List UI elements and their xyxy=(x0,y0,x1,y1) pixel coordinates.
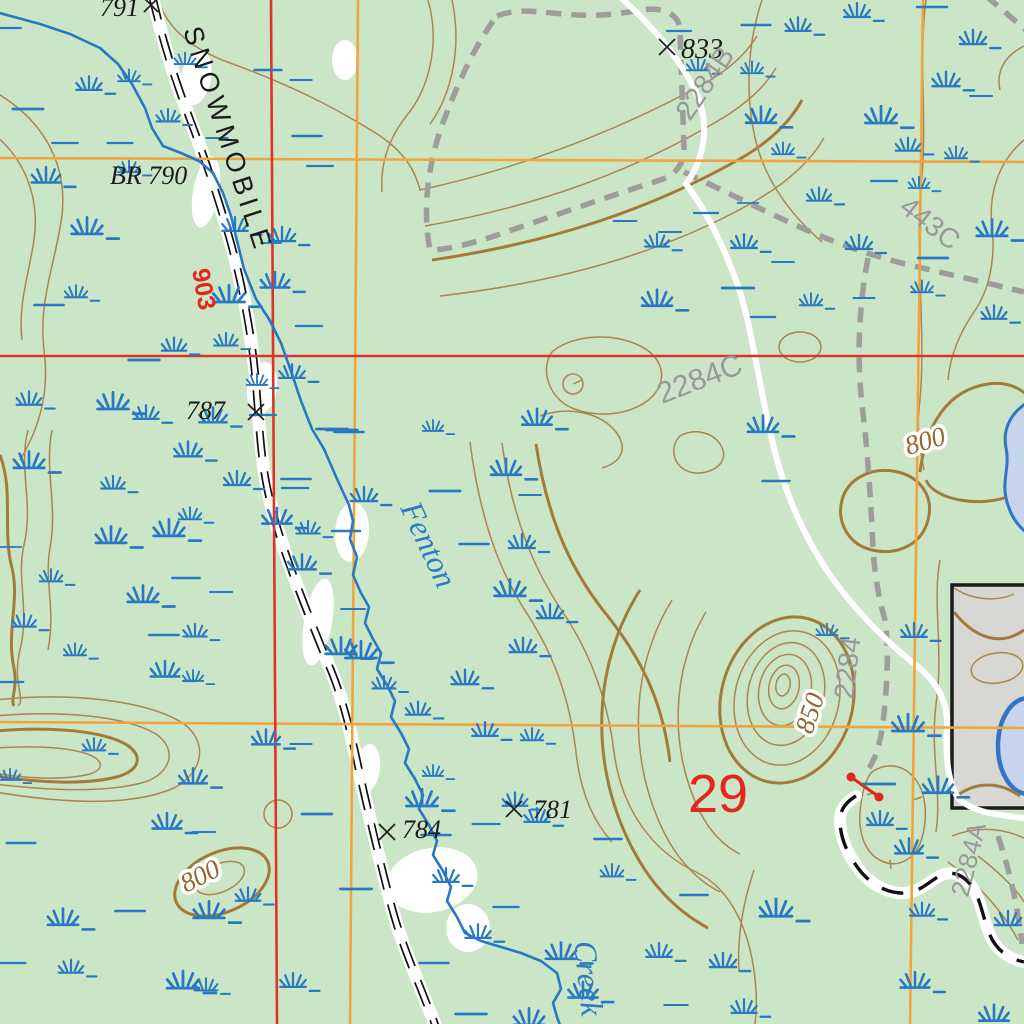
marsh-tuft-icon xyxy=(741,61,775,76)
marsh-tuft-icon xyxy=(406,702,444,719)
marsh-tuft-icon xyxy=(932,72,974,91)
marsh-tuft-icon xyxy=(945,146,979,161)
trail-2284A-label: 2284A xyxy=(945,819,992,900)
marsh-tuft-icon xyxy=(179,507,213,522)
marsh-tuft-icon xyxy=(844,3,884,21)
marsh-tuft-icon xyxy=(261,272,305,292)
marsh-tuft-icon xyxy=(12,614,48,630)
marsh-tuft-icon xyxy=(867,811,907,829)
marsh-tuft-icon xyxy=(960,30,1000,48)
section-number-29: 29 xyxy=(688,764,748,824)
marsh-tuft-icon xyxy=(731,999,770,1016)
marsh-tuft-icon xyxy=(510,638,551,656)
marsh-tuft-icon xyxy=(807,188,844,205)
grid-line-orange-v2 xyxy=(910,0,923,1024)
marsh-tuft-icon xyxy=(118,70,151,85)
marsh-tuft-icon xyxy=(17,391,55,408)
trail-443C-label: 443C xyxy=(894,190,966,256)
pit-inset-box xyxy=(952,585,1024,808)
marsh-tuft-icon xyxy=(72,217,119,238)
benchmark-label: BR 790 xyxy=(110,161,187,190)
marsh-tuft-icon xyxy=(153,813,197,833)
marsh-tuft-icon xyxy=(423,765,455,779)
marsh-tuft-icon xyxy=(982,305,1020,322)
marsh-tuft-icon xyxy=(895,838,938,857)
marsh-tuft-icon xyxy=(64,643,98,658)
marsh-tuft-icon xyxy=(537,604,577,622)
marsh-tuft-icon xyxy=(162,338,200,355)
marsh-tuft-icon xyxy=(65,285,99,300)
marsh-tuft-icon xyxy=(910,903,947,920)
marsh-tuft-icon xyxy=(174,441,216,460)
marsh-tuft-icon xyxy=(98,392,146,413)
route-903-label: 903 xyxy=(186,266,221,312)
map-canvas: 791 SNOWMOBILE BR 790 903 787 833 2284B … xyxy=(0,0,1024,1024)
marsh-tuft-icon xyxy=(495,579,542,600)
marsh-tuft-icon xyxy=(731,234,771,252)
marsh-tuft-icon xyxy=(760,899,809,921)
marsh-tuft-icon xyxy=(279,364,318,382)
marsh-tuft-icon xyxy=(406,789,454,811)
marsh-tuft-icon xyxy=(892,714,940,736)
marsh-tuft-icon xyxy=(645,234,682,251)
spot-label-781: 781 xyxy=(533,795,572,824)
marsh-tuft-icon xyxy=(601,864,636,880)
marsh-tuft-icon xyxy=(785,17,824,34)
contour-label-800-east: 800 xyxy=(901,421,949,461)
marsh-tuft-icon xyxy=(101,476,137,492)
marsh-tuft-icon xyxy=(451,670,493,689)
marsh-tuft-icon xyxy=(491,459,537,480)
marsh-tuft-icon xyxy=(772,142,806,157)
contour-label-800-southwest: 800 xyxy=(175,853,225,898)
clearing-patches xyxy=(176,40,490,952)
spot-label-787: 787 xyxy=(186,396,226,425)
marsh-tuft-icon xyxy=(96,526,143,547)
marsh-tuft-icon xyxy=(151,661,195,681)
marsh-tuft-icon xyxy=(911,280,945,295)
marsh-tuft-icon xyxy=(514,1008,561,1024)
marsh-tuft-icon xyxy=(179,768,222,787)
marsh-tuft-icon xyxy=(83,738,118,754)
marsh-tuft-icon xyxy=(646,943,685,961)
marsh-tuft-icon xyxy=(800,293,834,308)
marsh-tuft-icon xyxy=(32,167,76,187)
marsh-tuft-icon xyxy=(351,487,391,505)
marsh-tuft-icon xyxy=(183,624,219,640)
marsh-tuft-icon xyxy=(194,901,241,922)
marsh-tuft-icon xyxy=(521,728,555,743)
marsh-tuft-icon xyxy=(76,76,115,93)
marsh-tuft-icon xyxy=(977,219,1024,240)
marsh-tuft-icon xyxy=(979,1005,1024,1024)
topo-map-viewport[interactable]: 791 SNOWMOBILE BR 790 903 787 833 2284B … xyxy=(0,0,1024,1024)
marsh-tuft-icon xyxy=(280,973,319,991)
marsh-tuft-icon xyxy=(128,585,175,606)
marsh-tuft-icon xyxy=(710,953,750,971)
marsh-tuft-icon xyxy=(896,138,934,155)
spot-label-784: 784 xyxy=(402,815,441,844)
marsh-tuft-icon xyxy=(865,106,913,128)
grid-line-orange-h2 xyxy=(0,722,1024,728)
marsh-tuft-icon xyxy=(909,177,941,191)
marsh-tuft-icon xyxy=(14,451,61,472)
four-wheel-drive-road xyxy=(840,796,1024,962)
marsh-tuft-icon xyxy=(252,729,295,748)
marsh-tuft-icon xyxy=(154,519,201,540)
marsh-tuft-icon xyxy=(48,909,94,930)
creek-name-creek: Creek xyxy=(567,939,611,1018)
marsh-tuft-icon xyxy=(40,569,75,585)
spot-label-791: 791 xyxy=(100,0,139,22)
marsh-tuft-icon xyxy=(642,290,688,311)
marsh-tuft-icon xyxy=(195,978,230,994)
marsh-tuft-icon xyxy=(901,972,945,992)
creek-name-fenton: Fenton xyxy=(393,495,464,593)
marsh-tuft-icon xyxy=(423,420,455,434)
marsh-tuft-icon xyxy=(59,960,97,977)
marsh-tuft-icon xyxy=(901,623,940,641)
trail-2284-label: 2284 xyxy=(828,635,866,701)
trail-2284C-label: 2284C xyxy=(653,348,747,410)
lake xyxy=(1005,402,1024,534)
